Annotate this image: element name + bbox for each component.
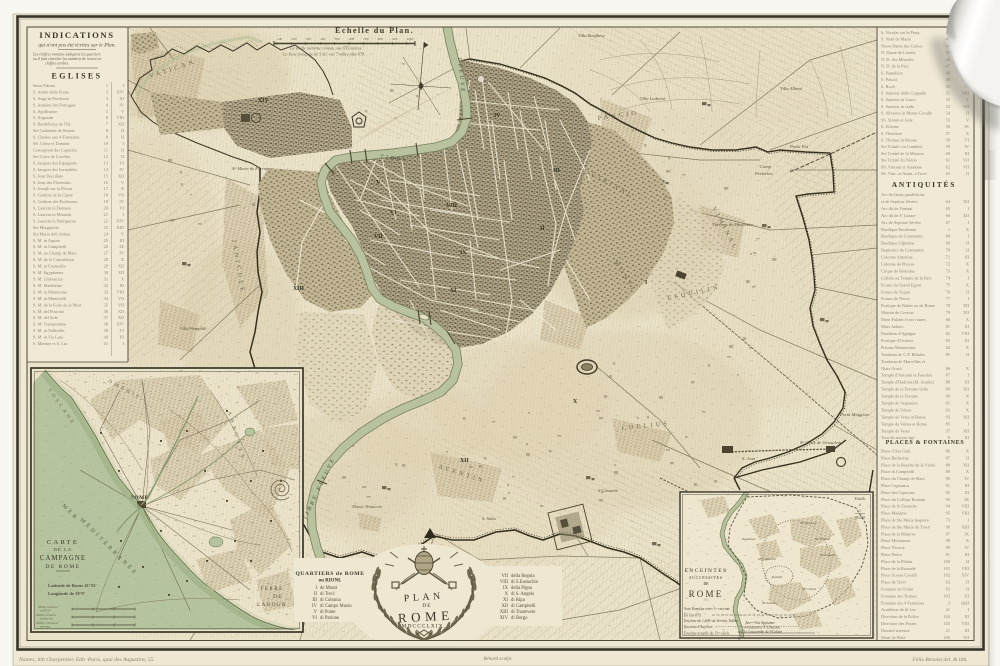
svg-text:XII: XII xyxy=(118,309,125,314)
svg-text:XI: XI xyxy=(503,598,508,603)
svg-text:XII: XII xyxy=(963,428,970,433)
svg-text:di Parione: di Parione xyxy=(320,616,339,621)
svg-text:Place de la Rotonde: Place de la Rotonde xyxy=(881,566,916,571)
svg-text:XII: XII xyxy=(118,315,125,320)
svg-text:12: 12 xyxy=(104,154,108,159)
svg-text:XI: XI xyxy=(964,435,969,440)
svg-text:Temple de Vénus: Temple de Vénus xyxy=(881,408,912,413)
svg-text:S. Silvestre in Monte Cavallo: S. Silvestre in Monte Cavallo xyxy=(881,111,932,116)
svg-text:S. M. Madeleine: S. M. Madeleine xyxy=(33,283,62,288)
svg-text:Basilique de Constantin: Basilique de Constantin xyxy=(881,234,923,239)
svg-text:XIV: XIV xyxy=(961,573,970,578)
svg-text:III: III xyxy=(965,628,970,633)
svg-text:III: III xyxy=(965,483,970,488)
svg-text:di S. Angelo: di S. Angelo xyxy=(511,592,535,597)
svg-text:71: 71 xyxy=(946,255,950,260)
svg-text:39: 39 xyxy=(104,328,108,333)
svg-text:89: 89 xyxy=(946,469,950,474)
svg-text:1: 1 xyxy=(948,227,950,232)
svg-text:19: 19 xyxy=(104,199,108,204)
svg-text:S. Sauveur delle Coppelle: S. Sauveur delle Coppelle xyxy=(881,91,926,96)
svg-text:EGLISES: EGLISES xyxy=(51,72,102,81)
svg-text:Sᵗᵉ Marie de Ferrare: Sᵗᵉ Marie de Ferrare xyxy=(232,166,270,171)
svg-text:72: 72 xyxy=(946,262,950,267)
svg-text:Cirque de Romulus: Cirque de Romulus xyxy=(881,268,915,273)
svg-text:IX: IX xyxy=(503,586,509,591)
svg-text:41: 41 xyxy=(946,607,950,612)
svg-text:Conception des Capucins: Conception des Capucins xyxy=(33,148,77,153)
svg-text:XIV: XIV xyxy=(500,616,509,621)
svg-text:XII: XII xyxy=(963,213,970,218)
svg-text:83: 83 xyxy=(946,338,950,343)
svg-text:Place du Champ de Mars: Place du Champ de Mars xyxy=(881,476,925,481)
svg-text:Arc de Janus quadrifrons: Arc de Janus quadrifrons xyxy=(881,192,925,197)
svg-text:Fontaine du Triton: Fontaine du Triton xyxy=(881,587,914,592)
svg-text:S. Joseph sur la Prison: S. Joseph sur la Prison xyxy=(33,186,73,191)
svg-text:S. Laurent in Miranda: S. Laurent in Miranda xyxy=(33,212,71,217)
svg-text:1: 1 xyxy=(859,509,861,513)
svg-text:di Campo Marzo: di Campo Marzo xyxy=(320,604,352,609)
svg-text:Direction des Postes: Direction des Postes xyxy=(881,621,917,626)
svg-text:Porta Maggiore: Porta Maggiore xyxy=(839,412,870,417)
svg-text:III: III xyxy=(965,490,970,495)
svg-text:Temple de Vesta: Temple de Vesta xyxy=(881,428,910,433)
svg-text:38: 38 xyxy=(104,322,108,327)
svg-text:La lieue française de 5 kil. v: La lieue française de 5 kil. vue 7 mille… xyxy=(282,52,365,57)
svg-text:S. Théodore: S. Théodore xyxy=(881,131,902,136)
svg-text:90: 90 xyxy=(946,476,950,481)
svg-text:SS. Côme et Damien: SS. Côme et Damien xyxy=(33,141,70,146)
svg-text:Place Madame: Place Madame xyxy=(881,511,907,516)
svg-text:40: 40 xyxy=(104,335,108,340)
svg-text:di Borgo: di Borgo xyxy=(511,616,528,621)
svg-text:55: 55 xyxy=(946,117,950,122)
svg-text:Tombeau de C.P. Bibulus: Tombeau de C.P. Bibulus xyxy=(881,352,925,357)
svg-text:22: 22 xyxy=(104,219,108,224)
svg-text:VII: VII xyxy=(963,164,970,169)
svg-text:106: 106 xyxy=(943,635,950,640)
svg-text:Nantes, lith Charpentier, Edit: Nantes, lith Charpentier, Edit ·Paris, q… xyxy=(18,657,155,663)
svg-text:90: 90 xyxy=(946,394,950,399)
svg-text:61: 61 xyxy=(946,158,950,163)
svg-text:MDCCCLXIX.: MDCCCLXIX. xyxy=(402,624,446,630)
svg-text:XII: XII xyxy=(963,303,970,308)
svg-text:Panthéon: Panthéon xyxy=(741,537,756,541)
svg-text:88: 88 xyxy=(946,462,950,467)
svg-text:VIII: VIII xyxy=(500,580,509,585)
svg-text:VII: VII xyxy=(963,158,970,163)
svg-text:S. Ange in Pescheria: S. Ange in Pescheria xyxy=(33,96,69,101)
svg-text:Place de la Minerve: Place de la Minerve xyxy=(881,531,916,536)
svg-text:35: 35 xyxy=(104,302,108,307)
svg-text:30: 30 xyxy=(104,270,108,275)
svg-text:Latitude de Rome 41°55': Latitude de Rome 41°55' xyxy=(48,583,97,588)
svg-text:S. Jean des Florentins: S. Jean des Florentins xyxy=(33,180,71,185)
svg-text:93: 93 xyxy=(946,497,950,502)
svg-text:à 60°/D: à 60°/D xyxy=(40,608,51,612)
svg-text:CARTE: CARTE xyxy=(47,539,79,546)
svg-text:IV: IV xyxy=(494,113,501,119)
svg-text:S. M. in Monterone: S. M. in Monterone xyxy=(33,289,67,294)
svg-text:S. M. in Vallicella: S. M. in Vallicella xyxy=(33,328,64,333)
svg-text:di Campitelli: di Campitelli xyxy=(511,604,536,609)
svg-text:75: 75 xyxy=(946,282,950,287)
svg-text:Ancᵐᵉ Voie Appienne: Ancᵐᵉ Voie Appienne xyxy=(744,621,775,625)
svg-text:Ste Trinité du Niério: Ste Trinité du Niério xyxy=(881,158,917,163)
svg-text:Place Scossa Cavalli: Place Scossa Cavalli xyxy=(881,573,918,578)
svg-text:68: 68 xyxy=(946,234,950,239)
svg-text:80: 80 xyxy=(946,317,950,322)
svg-text:S. M. in Campitelli: S. M. in Campitelli xyxy=(33,244,67,249)
svg-text:XII: XII xyxy=(963,387,970,392)
svg-text:45.000: 45.000 xyxy=(855,516,865,520)
svg-text:III: III xyxy=(120,335,125,340)
svg-text:VIII: VIII xyxy=(117,115,125,120)
svg-text:~~~: ~~~ xyxy=(703,598,708,602)
svg-text:3: 3 xyxy=(948,600,950,605)
svg-text:103: 103 xyxy=(943,593,950,598)
svg-text:Enceinte actuelle du 13ᵉᵐ sièc: Enceinte actuelle du 13ᵉᵐ siècle xyxy=(683,632,730,636)
svg-text:S. Roch: S. Roch xyxy=(881,84,896,89)
svg-text:III: III xyxy=(965,552,970,557)
svg-text:21: 21 xyxy=(104,212,108,217)
svg-text:Place de Ste Marie majeure: Place de Ste Marie majeure xyxy=(881,518,929,523)
svg-text:S. M. Libératrice: S. M. Libératrice xyxy=(33,277,63,282)
svg-text:Sous Romulus ▪▪▪▪▪▪ 1ʳᵉ encei: Sous Romulus ▪▪▪▪▪▪ 1ʳᵉ enceinte xyxy=(684,607,731,611)
svg-text:63: 63 xyxy=(946,580,950,585)
svg-text:Ste Trinité de la Mission: Ste Trinité de la Mission xyxy=(881,151,925,156)
svg-text:73: 73 xyxy=(946,518,950,523)
svg-text:VII: VII xyxy=(118,302,125,307)
svg-text:100: 100 xyxy=(943,559,950,564)
svg-text:I&II: I&II xyxy=(961,600,969,605)
svg-text:Murs Judaïci: Murs Judaïci xyxy=(881,324,904,329)
svg-text:Panthéon d'Agrippa: Panthéon d'Agrippa xyxy=(881,331,916,336)
svg-text:XII: XII xyxy=(501,604,508,609)
svg-text:N. D. des Miracles: N. D. des Miracles xyxy=(881,57,914,62)
svg-text:Notre-Dame des Grâces: Notre-Dame des Grâces xyxy=(881,43,923,48)
svg-text:3: 3 xyxy=(106,90,108,95)
svg-text:Mont de Piété: Mont de Piété xyxy=(881,635,905,640)
svg-text:13: 13 xyxy=(104,160,108,165)
svg-text:92: 92 xyxy=(946,408,950,413)
svg-text:Place de St Eustache: Place de St Eustache xyxy=(881,504,917,509)
svg-text:15: 15 xyxy=(104,173,108,178)
svg-text:S. M. in Cosmedin: S. M. in Cosmedin xyxy=(33,264,67,269)
svg-text:VI: VI xyxy=(312,616,317,621)
svg-text:33: 33 xyxy=(104,289,108,294)
svg-text:Place de la Bouche de la Vérit: Place de la Bouche de la Vérité xyxy=(881,462,936,467)
svg-text:102: 102 xyxy=(943,573,950,578)
svg-text:et à la Catacombe de SᵗCalixte: et à la Catacombe de SᵗCalixte xyxy=(738,630,783,634)
svg-text:S. M. de la Foire de la Mort: S. M. de la Foire de la Mort xyxy=(33,302,82,307)
svg-text:S. Laurent in Damaso: S. Laurent in Damaso xyxy=(33,206,71,211)
svg-text:Ste Marie dell Anima: Ste Marie dell Anima xyxy=(33,231,70,236)
svg-text:41: 41 xyxy=(104,341,108,346)
svg-text:Colonne de Phocas: Colonne de Phocas xyxy=(881,262,915,267)
svg-text:S. M. in Monticelli: S. M. in Monticelli xyxy=(33,296,67,301)
svg-text:400: 400 xyxy=(320,37,325,41)
svg-text:Mᵗ Quirinal: Mᵗ Quirinal xyxy=(799,521,816,525)
svg-text:Echelle: Echelle xyxy=(854,497,866,501)
svg-text:Direction de la Police: Direction de la Police xyxy=(881,614,919,619)
svg-text:800: 800 xyxy=(378,37,383,41)
svg-text:S. M. au Champ de Mars: S. M. au Champ de Mars xyxy=(33,251,77,256)
svg-text:modernes: modernes xyxy=(40,616,54,620)
svg-text:VI: VI xyxy=(390,210,397,216)
svg-text:N. D. de la Paix: N. D. de la Paix xyxy=(881,64,910,69)
svg-text:11: 11 xyxy=(104,148,108,153)
svg-text:XI: XI xyxy=(964,338,969,343)
svg-text:Basilique Emilienne: Basilique Emilienne xyxy=(881,227,916,232)
svg-text:99: 99 xyxy=(946,545,950,550)
svg-text:chiffres arabes.: chiffres arabes. xyxy=(45,62,69,66)
svg-text:VII: VII xyxy=(501,574,508,579)
svg-text:Forum de Trajan: Forum de Trajan xyxy=(881,289,911,294)
svg-text:SS. Simon et Jude: SS. Simon et Jude xyxy=(881,117,913,122)
svg-text:Place des Capucins: Place des Capucins xyxy=(881,490,915,495)
svg-text:S. Thomas in Brione: S. Thomas in Brione xyxy=(881,138,917,143)
svg-text:S. M. in Aquiro: S. M. in Aquiro xyxy=(33,238,60,243)
svg-text:100: 100 xyxy=(277,37,282,41)
svg-text:VII: VII xyxy=(118,193,125,198)
svg-text:Temple de Vespasien: Temple de Vespasien xyxy=(881,401,918,406)
svg-text:25: 25 xyxy=(104,238,108,243)
svg-text:IV: IV xyxy=(312,604,318,609)
svg-text:Fontaine des Tortues: Fontaine des Tortues xyxy=(881,593,917,598)
svg-text:Temple d'Hadrien (M. Aurèle): Temple d'Hadrien (M. Aurèle) xyxy=(881,380,934,385)
svg-text:58: 58 xyxy=(946,138,950,143)
svg-text:Portique d'Octavie: Portique d'Octavie xyxy=(881,338,913,343)
svg-text:III: III xyxy=(120,283,125,288)
svg-text:73: 73 xyxy=(946,268,950,273)
svg-text:900: 900 xyxy=(392,37,397,41)
svg-text:XII: XII xyxy=(118,122,125,127)
svg-text:PLACES & FONTAINES: PLACES & FONTAINES xyxy=(886,440,965,446)
svg-text:Temple de la Fortune virile: Temple de la Fortune virile xyxy=(881,387,928,392)
svg-text:Portique de Balais ou de Rome: Portique de Balais ou de Rome xyxy=(881,303,935,308)
svg-text:53: 53 xyxy=(946,104,950,109)
svg-text:60: 60 xyxy=(946,151,950,156)
svg-text:CAMPAGNE: CAMPAGNE xyxy=(40,555,86,562)
svg-text:N. Dame de Lorette: N. Dame de Lorette xyxy=(881,50,916,55)
svg-text:S. André delle Fratte: S. André delle Fratte xyxy=(33,90,69,95)
svg-text:III: III xyxy=(965,380,970,385)
svg-text:Place Barberine: Place Barberine xyxy=(881,455,909,460)
svg-text:8: 8 xyxy=(106,128,108,133)
svg-text:S. M. Transpontine: S. M. Transpontine xyxy=(33,322,66,327)
svg-text:Porta Pia: Porta Pia xyxy=(789,144,809,149)
svg-text:Prétorien: Prétorien xyxy=(754,171,773,176)
svg-text:S. Antoine des Portugais: S. Antoine des Portugais xyxy=(33,102,76,107)
svg-text:ou RIONI.: ou RIONI. xyxy=(319,579,343,584)
svg-text:18: 18 xyxy=(104,193,108,198)
svg-text:Ste Marguerite: Ste Marguerite xyxy=(33,225,59,230)
svg-text:XI: XI xyxy=(964,324,969,329)
svg-text:500: 500 xyxy=(335,37,340,41)
svg-text:S. Sauveur in onda: S. Sauveur in onda xyxy=(881,104,914,109)
svg-text:VIII: VIII xyxy=(446,203,458,209)
svg-text:29: 29 xyxy=(104,264,108,269)
svg-text:9: 9 xyxy=(106,135,108,140)
svg-text:Félix Benoist del. & lith.: Félix Benoist del. & lith. xyxy=(911,657,967,663)
svg-text:IX: IX xyxy=(460,250,467,256)
svg-text:DE ROME: DE ROME xyxy=(45,564,80,570)
svg-text:Niais Orasii: Niais Orasii xyxy=(881,366,903,371)
svg-text:Villa Borghese: Villa Borghese xyxy=(578,33,605,38)
svg-text:XIII: XIII xyxy=(962,524,970,529)
svg-text:82: 82 xyxy=(946,331,950,336)
svg-text:Douane terrestre: Douane terrestre xyxy=(881,628,910,633)
svg-text:II: II xyxy=(540,226,545,232)
svg-text:Place de Trévi: Place de Trévi xyxy=(881,580,907,585)
svg-text:DE: DE xyxy=(703,582,709,586)
svg-text:VI: VI xyxy=(119,160,124,165)
svg-text:S. Nicolas sur la Prata: S. Nicolas sur la Prata xyxy=(881,30,920,35)
svg-text:DE: DE xyxy=(273,594,283,600)
svg-text:52: 52 xyxy=(946,97,950,102)
svg-text:ou il faut chercher les numéro: ou il faut chercher les numéros de renvo… xyxy=(33,57,101,61)
svg-text:conduisant à Sᵗ Sébastien: conduisant à Sᵗ Sébastien xyxy=(744,626,781,630)
svg-text:TERRE: TERRE xyxy=(260,586,283,592)
svg-text:S. Sauveur in Lauro: S. Sauveur in Lauro xyxy=(881,97,916,102)
svg-text:VII: VII xyxy=(963,635,970,640)
svg-text:Longitude de 19°9': Longitude de 19°9' xyxy=(48,591,85,596)
svg-text:Place Nicosie: Place Nicosie xyxy=(881,545,905,550)
svg-text:5: 5 xyxy=(106,109,108,114)
svg-text:III: III xyxy=(120,238,125,243)
svg-text:600: 600 xyxy=(349,37,354,41)
svg-text:III: III xyxy=(965,151,970,156)
svg-text:S. Jean: S. Jean xyxy=(742,456,756,461)
svg-text:Arc dit de S' Lazare: Arc dit de S' Lazare xyxy=(881,213,916,218)
svg-text:Prisons Mamertines: Prisons Mamertines xyxy=(881,345,916,350)
svg-text:3: 3 xyxy=(106,96,108,101)
svg-text:VI: VI xyxy=(119,206,124,211)
svg-text:S. M. del Sole: S. M. del Sole xyxy=(33,315,58,320)
svg-text:XI: XI xyxy=(450,288,457,294)
svg-text:qui n'ont pas été écrites sur: qui n'ont pas été écrites sur le Plan. xyxy=(38,43,116,49)
svg-text:de Monti: de Monti xyxy=(320,586,338,591)
svg-text:Arc dit de Fantani: Arc dit de Fantani xyxy=(881,206,913,211)
svg-text:VII: VII xyxy=(374,234,383,240)
svg-text:Temple de Vesta in Roma: Temple de Vesta in Roma xyxy=(881,414,926,419)
svg-text:S. M. in Via Lata: S. M. in Via Lata xyxy=(33,335,63,340)
svg-text:Place di Campitelli: Place di Campitelli xyxy=(881,469,915,474)
svg-text:Palatin: Palatin xyxy=(771,575,783,579)
svg-text:di Trevi: di Trevi xyxy=(320,592,335,597)
svg-text:XII: XII xyxy=(460,458,469,464)
svg-text:Camp: Camp xyxy=(760,164,772,169)
svg-text:31: 31 xyxy=(104,277,108,282)
svg-text:VIII: VIII xyxy=(962,511,970,516)
svg-text:23: 23 xyxy=(104,225,108,230)
svg-text:Sᵗᵉ Croix de Jérusalem: Sᵗᵉ Croix de Jérusalem xyxy=(800,440,842,445)
svg-text:S. Apollinaire: S. Apollinaire xyxy=(33,109,57,114)
svg-text:VIII: VIII xyxy=(117,289,125,294)
svg-text:di S.Eustachio: di S.Eustachio xyxy=(511,580,539,585)
svg-text:Ecurie du Grand Egout: Ecurie du Grand Egout xyxy=(881,282,922,287)
svg-text:81: 81 xyxy=(946,552,950,557)
svg-text:III: III xyxy=(553,168,561,174)
svg-text:S. Martine et S. Luc: S. Martine et S. Luc xyxy=(33,341,68,346)
svg-text:à: à xyxy=(859,503,861,507)
svg-text:S. Jean Decollato: S. Jean Decollato xyxy=(33,173,63,178)
svg-text:Colisée ou Temple de la Paix: Colisée ou Temple de la Paix xyxy=(881,275,932,280)
svg-text:Arc de Septime Sévère: Arc de Septime Sévère xyxy=(881,220,921,225)
svg-text:XIII: XIII xyxy=(500,610,509,615)
svg-text:Enceinte d'Aurélien: Enceinte d'Aurélien xyxy=(683,625,713,629)
svg-text:Place du Collège Romain: Place du Collège Romain xyxy=(881,497,926,502)
svg-text:S. Barthélemy de l'Ile: S. Barthélemy de l'Ile xyxy=(33,122,71,127)
svg-text:Place de Ste Marie du Trastᵉ: Place de Ste Marie du Trastᵉ xyxy=(881,524,931,529)
svg-text:91: 91 xyxy=(946,483,950,488)
svg-text:XIV: XIV xyxy=(258,98,269,104)
svg-text:XII: XII xyxy=(118,270,125,275)
svg-text:ENCEINTES: ENCEINTES xyxy=(684,568,727,574)
svg-text:83: 83 xyxy=(946,587,950,592)
svg-text:Forum de Nerva: Forum de Nerva xyxy=(881,296,910,301)
svg-text:Place Montanara: Place Montanara xyxy=(881,538,910,543)
svg-text:S. M. del Priorato: S. M. del Priorato xyxy=(33,309,64,314)
svg-text:Ste Catherine de Sienne: Ste Catherine de Sienne xyxy=(33,128,75,133)
svg-text:65: 65 xyxy=(946,206,950,211)
svg-text:Bénard sculpt.: Bénard sculpt. xyxy=(484,657,513,662)
svg-text:Ste Trinité via Condotti: Ste Trinité via Condotti xyxy=(881,144,923,149)
svg-text:et de Septime Sévère: et de Septime Sévère xyxy=(881,199,918,204)
svg-text:SS. Vinc. et Anast. à Trevi: SS. Vinc. et Anast. à Trevi xyxy=(881,171,928,176)
svg-text:SUCCESSIVES: SUCCESSIVES xyxy=(689,576,723,580)
svg-text:Baptistère de Constantin: Baptistère de Constantin xyxy=(881,248,925,253)
svg-text:Villa Pamphili: Villa Pamphili xyxy=(180,326,207,331)
svg-text:XIII: XIII xyxy=(293,286,305,292)
svg-text:88: 88 xyxy=(946,380,950,385)
svg-text:di Ripa: di Ripa xyxy=(511,598,526,603)
svg-text:1000: 1000 xyxy=(407,37,414,41)
svg-text:78: 78 xyxy=(946,303,950,308)
svg-text:VII: VII xyxy=(118,296,125,301)
svg-text:VIII: VIII xyxy=(962,331,970,336)
svg-text:S. Laurent in Panisperna: S. Laurent in Panisperna xyxy=(33,219,76,224)
svg-text:S. Nom de Marie: S. Nom de Marie xyxy=(881,37,911,42)
svg-text:70: 70 xyxy=(946,248,950,253)
svg-text:II: II xyxy=(314,592,318,597)
svg-text:69: 69 xyxy=(946,241,950,246)
svg-text:XII: XII xyxy=(118,264,125,269)
svg-text:85: 85 xyxy=(946,352,950,357)
svg-text:VIII: VIII xyxy=(962,504,970,509)
svg-text:XII: XII xyxy=(963,462,970,467)
svg-text:Mᵗ Esquilin: Mᵗ Esquilin xyxy=(819,553,836,557)
svg-text:Mᵗ Capitolin: Mᵗ Capitolin xyxy=(757,557,776,561)
svg-text:Fontaine des 4 Fontaines: Fontaine des 4 Fontaines xyxy=(881,600,925,605)
svg-text:Tombeau de Marcellus et: Tombeau de Marcellus et xyxy=(881,359,926,364)
svg-text:III: III xyxy=(965,614,970,619)
svg-text:S. M. Egyptienne: S. M. Egyptienne xyxy=(33,270,63,275)
svg-text:Mᵗ Aventin: Mᵗ Aventin xyxy=(761,601,777,605)
svg-text:ANTIQUITÉS: ANTIQUITÉS xyxy=(892,179,956,189)
svg-text:S. Pascal: S. Pascal xyxy=(881,77,897,82)
svg-text:95: 95 xyxy=(946,511,950,516)
svg-text:della Regola: della Regola xyxy=(511,574,535,579)
svg-text:10: 10 xyxy=(104,141,108,146)
svg-text:28: 28 xyxy=(104,257,108,262)
svg-text:VI: VI xyxy=(964,138,969,143)
svg-text:LABOUR: LABOUR xyxy=(257,602,287,608)
svg-text:di Colonna: di Colonna xyxy=(320,598,342,603)
svg-text:20: 20 xyxy=(104,206,108,211)
svg-text:Place Capranica: Place Capranica xyxy=(881,483,909,488)
